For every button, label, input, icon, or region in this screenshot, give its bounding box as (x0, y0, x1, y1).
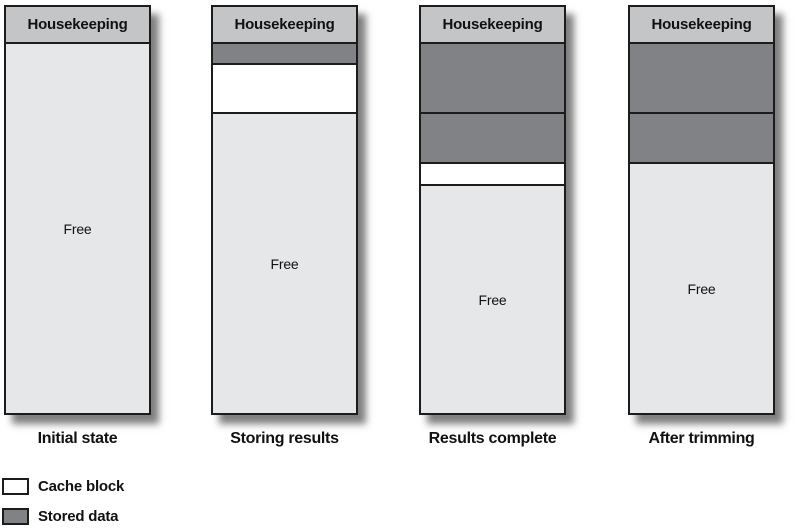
segment-stored-data (421, 114, 564, 164)
segment-stored-data (630, 44, 773, 114)
segment-stored-data (213, 44, 356, 65)
housekeeping-header: Housekeeping (630, 7, 773, 44)
memory-column-body: Free (213, 44, 356, 413)
memory-column-body: Free (630, 44, 773, 413)
segment-free: Free (213, 114, 356, 413)
housekeeping-header: Housekeeping (213, 7, 356, 44)
segment-free: Free (421, 186, 564, 413)
caption-results-complete: Results complete (419, 430, 566, 448)
memory-column-body: Free (421, 44, 564, 413)
segment-free: Free (6, 44, 149, 413)
segment-cache-block (421, 164, 564, 186)
memory-diagram: Housekeeping Free Housekeeping Free Hous… (0, 0, 795, 532)
housekeeping-header: Housekeeping (421, 7, 564, 44)
legend-label-cache-block: Cache block (38, 478, 124, 495)
memory-column-body: Free (6, 44, 149, 413)
stored-data-swatch (2, 508, 29, 525)
legend-label-stored-data: Stored data (38, 508, 118, 525)
segment-stored-data (421, 44, 564, 114)
legend-item-cache-block: Cache block (2, 478, 124, 495)
caption-after-trimming: After trimming (628, 430, 775, 448)
memory-column-storing-results: Housekeeping Free (211, 5, 358, 415)
segment-free: Free (630, 164, 773, 413)
housekeeping-header: Housekeeping (6, 7, 149, 44)
legend-item-stored-data: Stored data (2, 508, 118, 525)
cache-block-swatch (2, 478, 29, 495)
memory-column-initial-state: Housekeeping Free (4, 5, 151, 415)
memory-column-after-trimming: Housekeeping Free (628, 5, 775, 415)
memory-column-results-complete: Housekeeping Free (419, 5, 566, 415)
segment-cache-block (213, 65, 356, 114)
caption-initial-state: Initial state (4, 430, 151, 448)
segment-stored-data (630, 114, 773, 164)
caption-storing-results: Storing results (211, 430, 358, 448)
